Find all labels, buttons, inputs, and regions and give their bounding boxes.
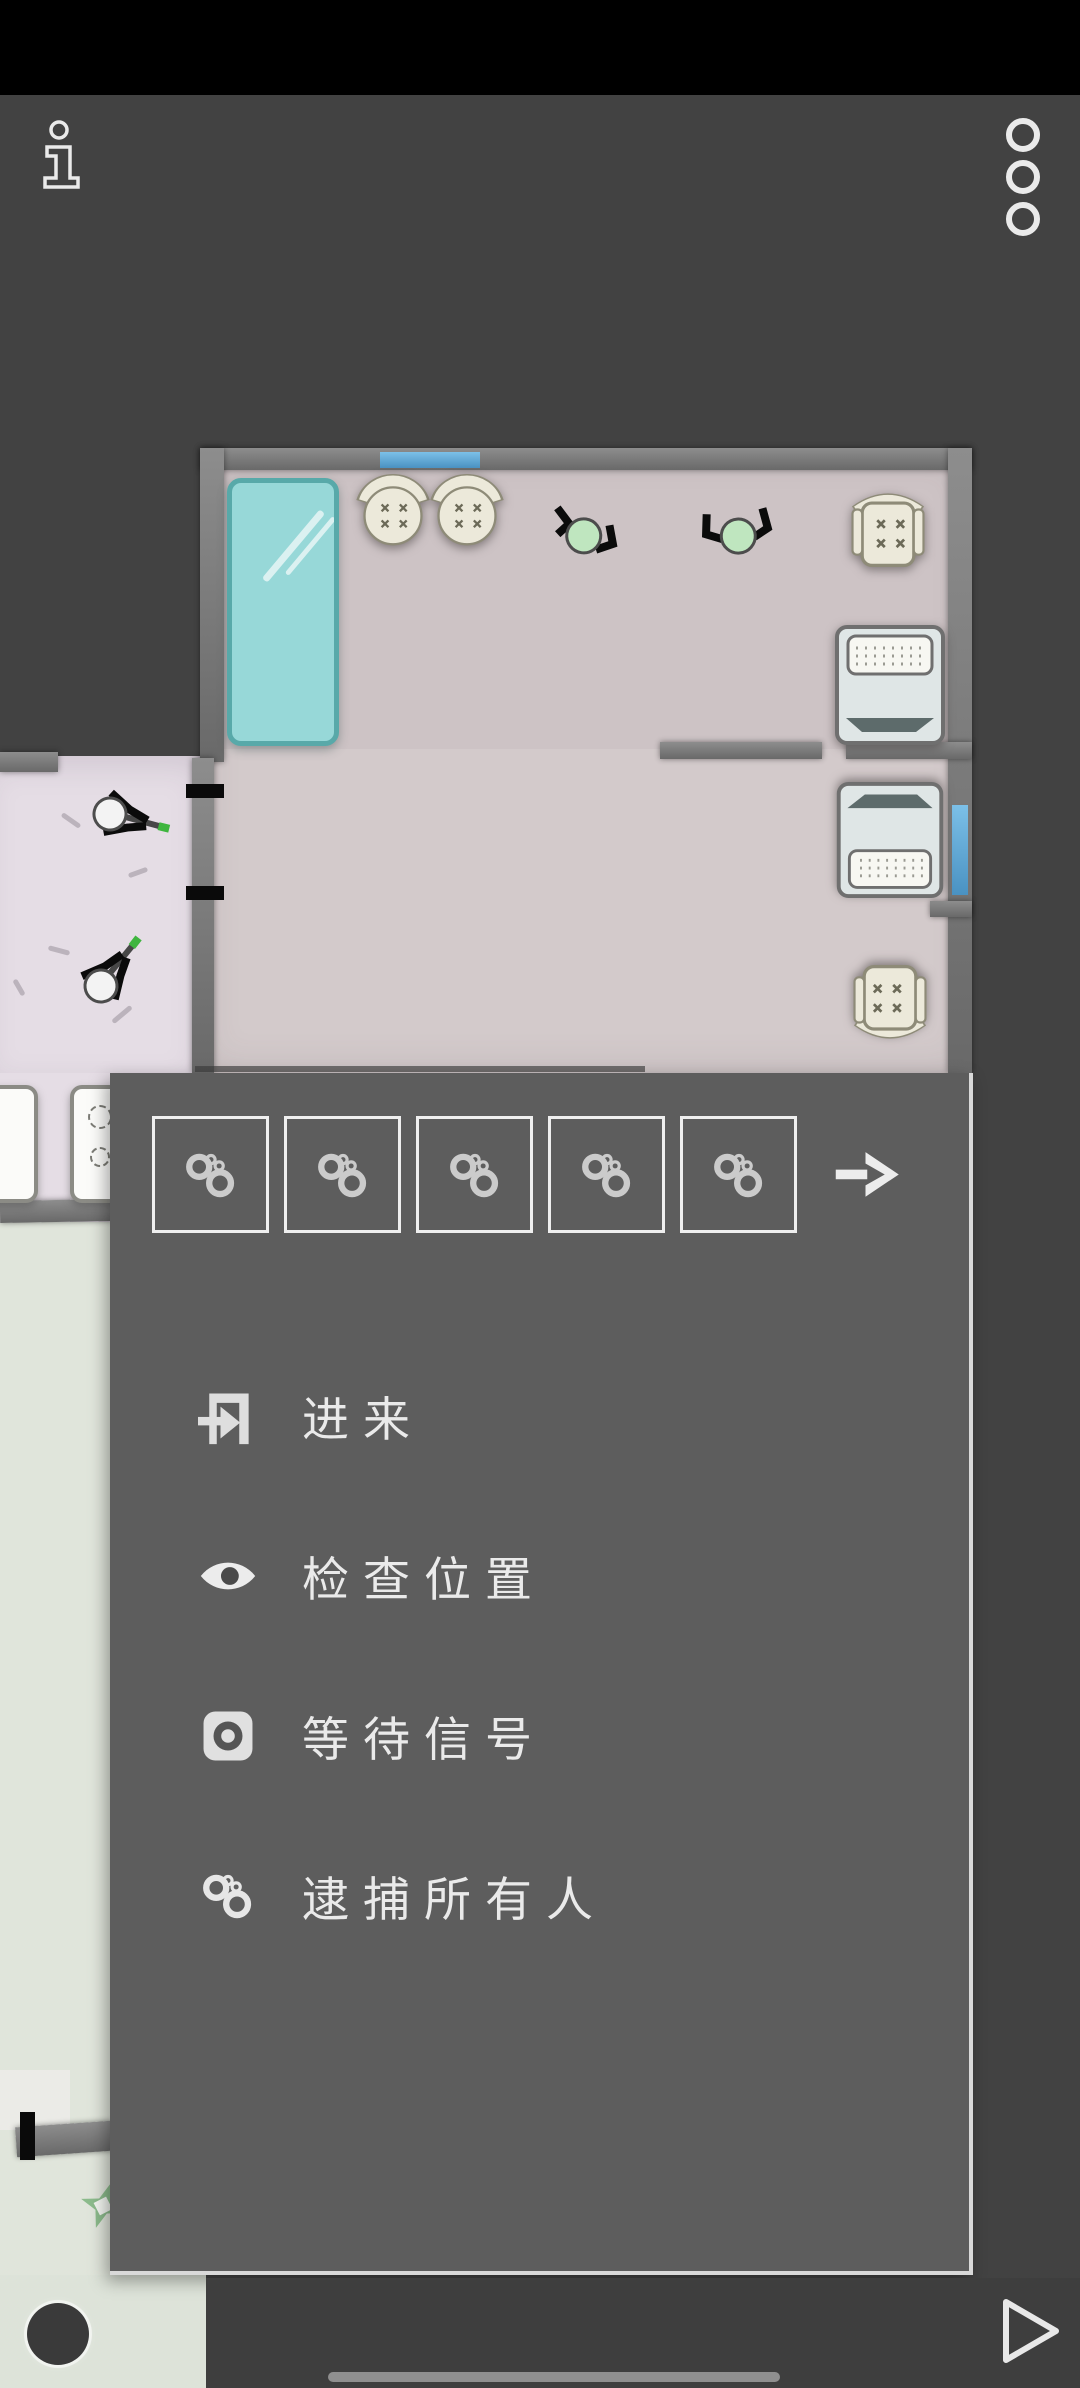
loadout-slot-3[interactable] [416,1116,533,1233]
menu-item-label: 等待信号 [302,1701,546,1770]
pool-table [227,478,339,746]
breach-marker-3[interactable] [20,2112,35,2160]
bed-1 [833,624,947,746]
play-button[interactable] [996,2294,1066,2368]
wall-right [948,448,972,1073]
more-options-button[interactable] [834,1139,904,1209]
handcuffs-icon [182,1146,240,1204]
wall-left-upper [200,448,224,762]
three-dots-menu-icon[interactable] [1002,114,1044,244]
wall-stub [930,901,972,917]
wall-inner-1 [660,742,822,759]
armchair-top [846,488,930,574]
menu-item-wait-signal[interactable]: 等待信号 [198,1701,546,1770]
wall-top [200,448,972,470]
wait-signal-icon [198,1706,258,1766]
menu-item-label: 进来 [302,1381,424,1450]
bed-2 [833,781,947,899]
breach-marker-1[interactable] [186,784,224,798]
civilian-2[interactable] [696,495,783,569]
handcuffs-icon [198,1866,258,1926]
floor-light-patch [0,2070,70,2130]
loadout-slot-1[interactable] [152,1116,269,1233]
menu-item-arrest-everyone[interactable]: 逮捕所有人 [198,1861,607,1930]
handcuffs-icon [710,1146,768,1204]
door-enter-icon [198,1386,258,1446]
armchair-bottom [848,958,932,1044]
menu-item-label: 检查位置 [302,1541,546,1610]
menu-item-check-position[interactable]: 检查位置 [198,1541,546,1610]
game-screen: 进来 检查位置 等待信号 [0,0,1080,2388]
loadout-slot-5[interactable] [680,1116,797,1233]
handcuffs-icon [314,1146,372,1204]
round-chair [430,468,504,550]
window-right [952,805,968,895]
arrow-right-icon [834,1144,904,1204]
status-bar [0,0,1080,95]
home-indicator[interactable] [328,2372,780,2382]
cancel-circle-button[interactable] [27,2303,89,2365]
civilian-1[interactable] [542,495,629,573]
wall-side-room-top [0,752,58,772]
command-menu-panel: 进来 检查位置 等待信号 [110,1073,973,2275]
wall-side-room [192,758,214,1073]
breach-marker-2[interactable] [186,886,224,900]
menu-item-come-in[interactable]: 进来 [198,1381,424,1450]
appliance-left [0,1085,38,1203]
loadout-slot-2[interactable] [284,1116,401,1233]
round-chair [356,468,430,550]
window-top [380,452,480,468]
eye-icon [198,1546,258,1606]
handcuffs-icon [578,1146,636,1204]
loadout-slot-4[interactable] [548,1116,665,1233]
handcuffs-icon [446,1146,504,1204]
info-icon[interactable] [34,120,80,192]
wall-bottom-line [195,1066,645,1072]
menu-item-label: 逮捕所有人 [302,1861,607,1930]
